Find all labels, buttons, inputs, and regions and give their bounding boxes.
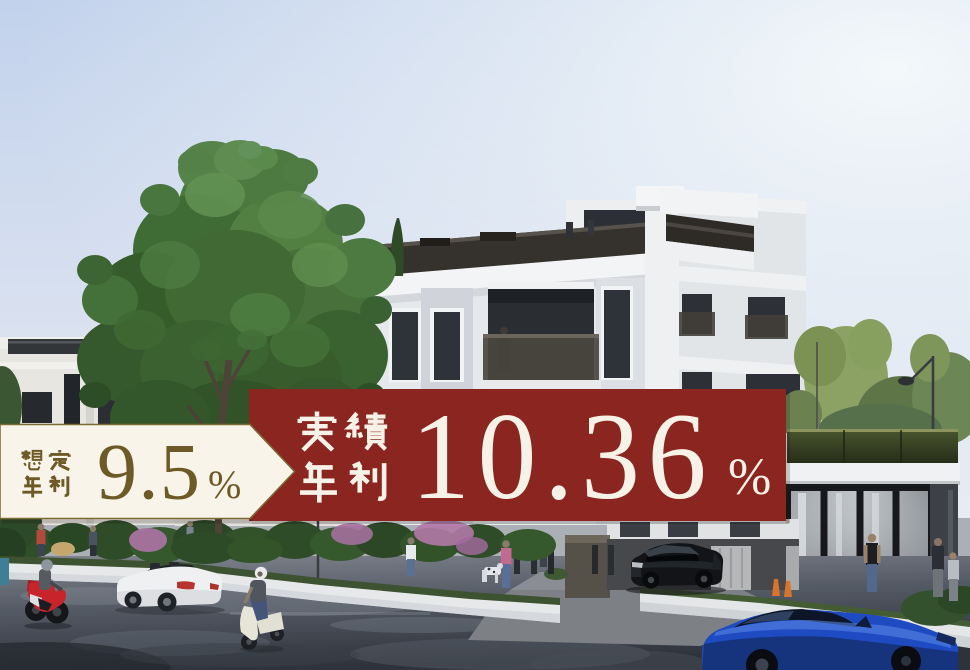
svg-text:9.5: 9.5 bbox=[97, 429, 202, 517]
svg-text:%: % bbox=[208, 462, 241, 507]
svg-text:%: % bbox=[728, 449, 771, 506]
svg-text:10.36: 10.36 bbox=[411, 388, 714, 525]
